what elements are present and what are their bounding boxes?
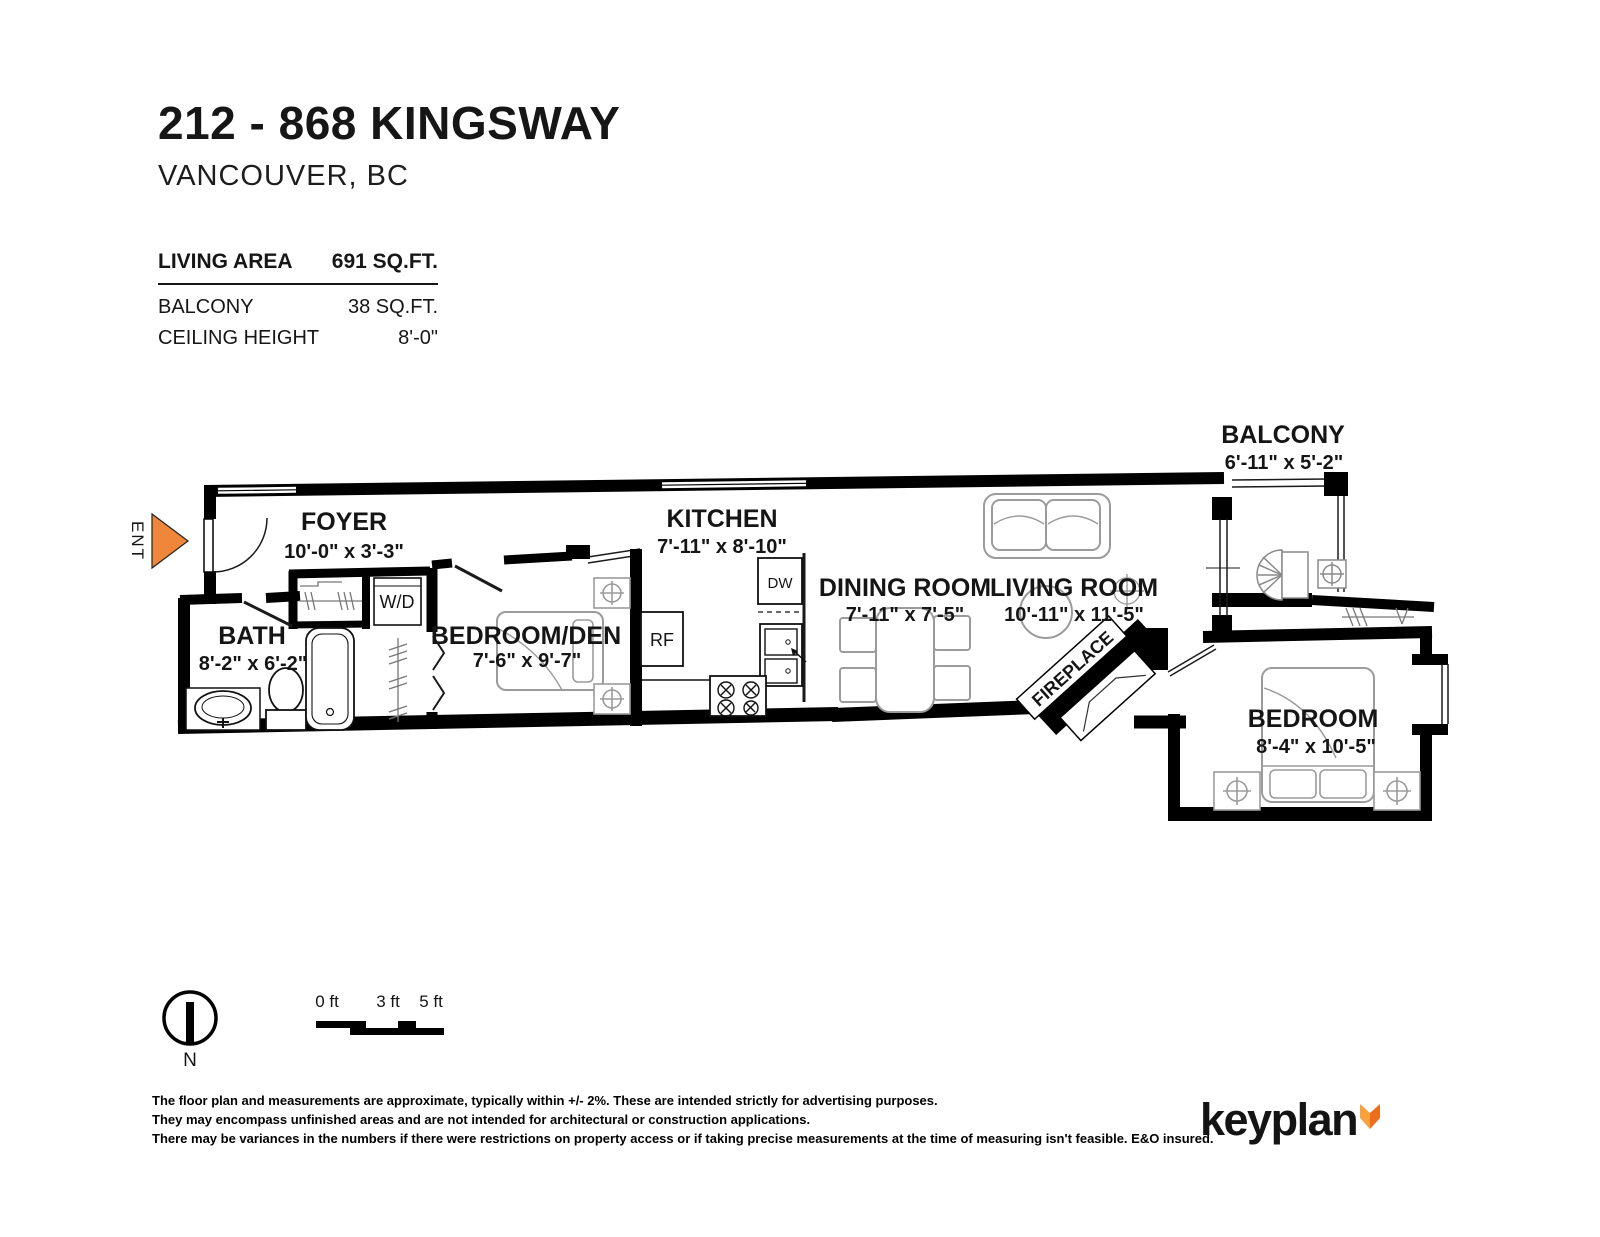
room-dims-kitchen: 7'-11" x 8'-10" [657, 536, 787, 558]
room-label-bedroom-den: BEDROOM/DEN [431, 622, 621, 650]
scale-tick-0: 0 ft [315, 992, 339, 1011]
fridge-label: RF [650, 630, 674, 650]
bedroom-bed [1262, 668, 1374, 802]
room-label-bath: BATH [218, 622, 286, 650]
room-label-dining: DINING ROOM [819, 574, 991, 602]
scale-bar: 0 ft 3 ft 5 ft [315, 992, 444, 1035]
entry-marker: ENT [128, 514, 188, 568]
room-label-foyer: FOYER [301, 508, 387, 536]
washer-dryer-label: W/D [380, 592, 415, 612]
room-label-bedroom: BEDROOM [1248, 705, 1379, 733]
compass: N [164, 992, 216, 1071]
floorplan-page: 212 - 868 KINGSWAY VANCOUVER, BC LIVING … [0, 0, 1600, 1237]
room-dims-bedroom: 8'-4" x 10'-5" [1256, 736, 1376, 758]
room-dims-foyer: 10'-0" x 3'-3" [284, 541, 404, 563]
scale-tick-3: 3 ft [376, 992, 400, 1011]
entry-label: ENT [128, 521, 147, 561]
scale-tick-5: 5 ft [419, 992, 443, 1011]
brand-name: keyplan [1200, 1094, 1357, 1146]
room-label-living: LIVING ROOM [990, 574, 1158, 602]
disclaimer-line: The floor plan and measurements are appr… [152, 1091, 1214, 1110]
room-dims-living: 10'-11" x 11'-5" [1004, 604, 1144, 626]
fox-icon [1357, 1098, 1383, 1132]
disclaimer: The floor plan and measurements are appr… [152, 1091, 1214, 1148]
room-dims-dining: 7'-11" x 7'-5" [846, 604, 965, 626]
room-label-kitchen: KITCHEN [666, 505, 777, 533]
room-dims-bath: 8'-2" x 6'-2" [199, 653, 308, 675]
dishwasher-label: DW [768, 575, 794, 592]
floor-plan-drawing: FIREPLACE ENT BALCONY 6'-11" x 5'-2" FOY… [0, 0, 1600, 1237]
brand-logo: keyplan [1200, 1094, 1383, 1146]
room-dims-balcony: 6'-11" x 5'-2" [1225, 452, 1344, 474]
disclaimer-line: There may be variances in the numbers if… [152, 1129, 1214, 1148]
room-dims-bedroom-den: 7'-6" x 9'-7" [473, 650, 582, 672]
entry-arrow-icon [152, 514, 188, 568]
room-label-balcony: BALCONY [1221, 421, 1345, 449]
disclaimer-line: They may encompass unfinished areas and … [152, 1110, 1214, 1129]
sofa [984, 494, 1110, 558]
balcony-furniture [1257, 550, 1346, 600]
north-label: N [183, 1050, 197, 1071]
